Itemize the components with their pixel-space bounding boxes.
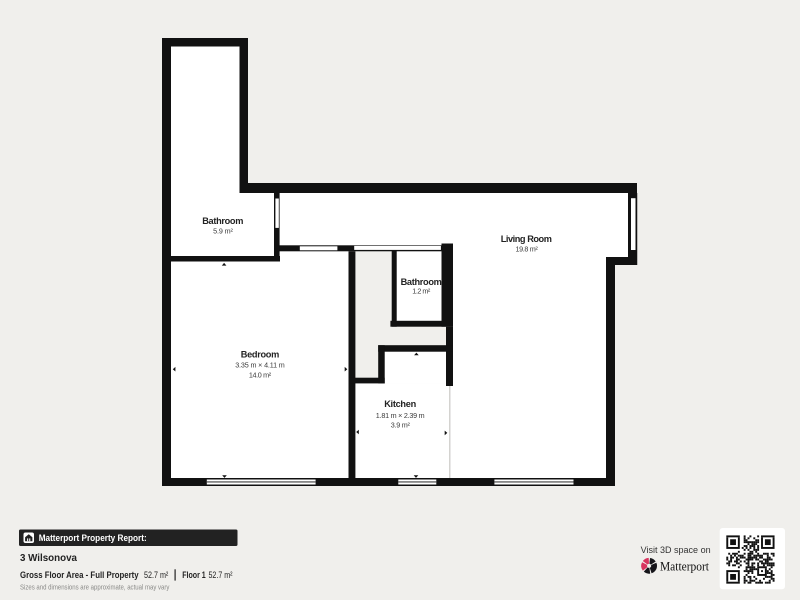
svg-text:3.9 m²: 3.9 m² — [391, 420, 411, 429]
svg-text:1.2 m²: 1.2 m² — [412, 287, 431, 296]
svg-text:52.7 m²: 52.7 m² — [209, 570, 233, 580]
svg-text:Bathroom: Bathroom — [202, 216, 243, 226]
svg-text:19.8 m²: 19.8 m² — [515, 245, 538, 254]
svg-text:1.81 m × 2.39 m: 1.81 m × 2.39 m — [376, 411, 425, 420]
svg-text:52.7 m²: 52.7 m² — [144, 570, 168, 580]
svg-text:3.35 m × 4.11 m: 3.35 m × 4.11 m — [235, 361, 285, 370]
svg-text:Bathroom: Bathroom — [401, 277, 442, 287]
svg-text:Visit 3D space on: Visit 3D space on — [641, 545, 711, 555]
svg-text:5.9 m²: 5.9 m² — [213, 226, 233, 235]
svg-text:Bedroom: Bedroom — [241, 349, 280, 359]
svg-text:Kitchen: Kitchen — [384, 399, 416, 409]
svg-text:Sizes and dimensions are appro: Sizes and dimensions are approximate, ac… — [20, 583, 170, 592]
svg-text:Matterport: Matterport — [660, 560, 710, 574]
svg-text:Gross Floor Area - Full Proper: Gross Floor Area - Full Property — [20, 570, 139, 580]
svg-text:Living Room: Living Room — [501, 234, 552, 244]
svg-text:3 Wilsonova: 3 Wilsonova — [20, 553, 77, 564]
svg-text:Floor 1: Floor 1 — [182, 570, 206, 580]
svg-text:14.0 m²: 14.0 m² — [249, 370, 272, 379]
svg-text:Matterport Property Report:: Matterport Property Report: — [39, 533, 147, 543]
